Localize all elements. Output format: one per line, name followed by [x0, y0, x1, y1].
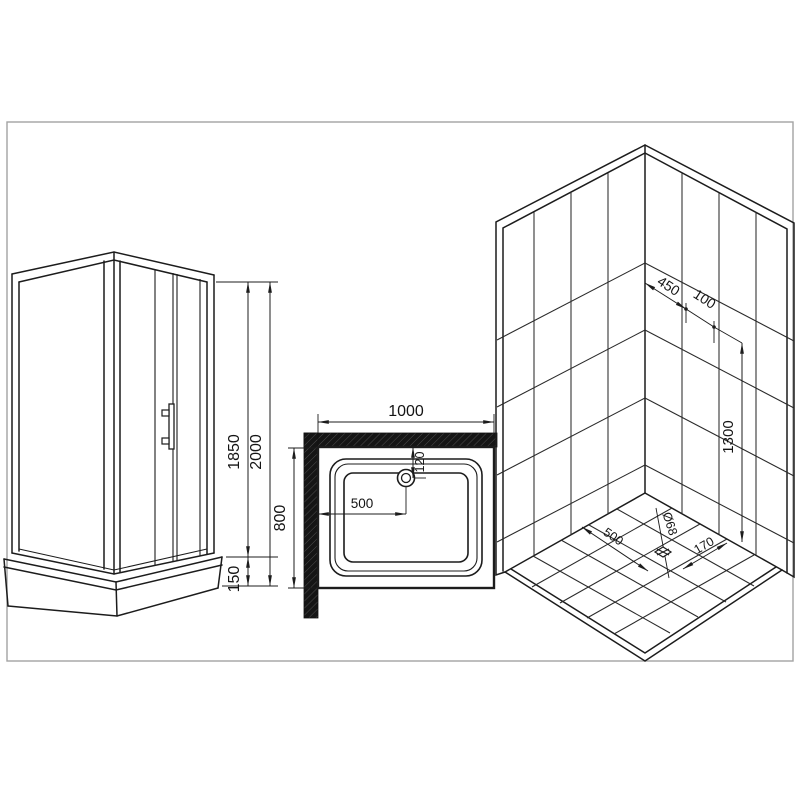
iso-view-tiled-corner: 450 100 1300 500 170 Ø68	[496, 145, 794, 661]
iso-floor-dimensions: 500 170 Ø68	[582, 508, 727, 578]
cabin-base-tray	[4, 557, 222, 616]
dim-total-height: 2000	[248, 434, 265, 470]
dim-drain-from-left: 500	[351, 496, 374, 511]
left-wall-tiles	[497, 173, 645, 556]
dim-tray-depth: 800	[272, 505, 289, 532]
dim-door-height: 1850	[226, 434, 243, 470]
dim-1300: 1300	[720, 420, 737, 453]
dim-tray-height: 150	[226, 566, 243, 593]
dim-drain-diameter: Ø68	[659, 510, 680, 537]
back-wall-section	[304, 433, 497, 447]
dim-450: 450	[655, 273, 683, 299]
side-wall-section	[304, 433, 318, 618]
door-handle	[162, 404, 174, 449]
dim-drain-from-back: 120	[413, 452, 427, 473]
front-view-dimensions: 1850 2000 150	[216, 282, 278, 592]
right-wall-tiles	[645, 173, 794, 555]
floor-tiles	[532, 508, 754, 634]
technical-drawing: 1850 2000 150 1000 800 5	[0, 0, 800, 800]
tray-drain	[398, 470, 415, 487]
dim-tray-width: 1000	[388, 403, 424, 420]
dim-floor-500: 500	[601, 525, 626, 548]
front-view-shower-cabin: 1850 2000 150	[4, 252, 278, 616]
cabin-frame-outline	[12, 252, 214, 574]
sliding-door-panels	[155, 269, 200, 565]
technical-drawing-page: 1850 2000 150 1000 800 5	[0, 0, 800, 800]
plan-view-shower-tray: 1000 800 500 120	[272, 403, 497, 618]
